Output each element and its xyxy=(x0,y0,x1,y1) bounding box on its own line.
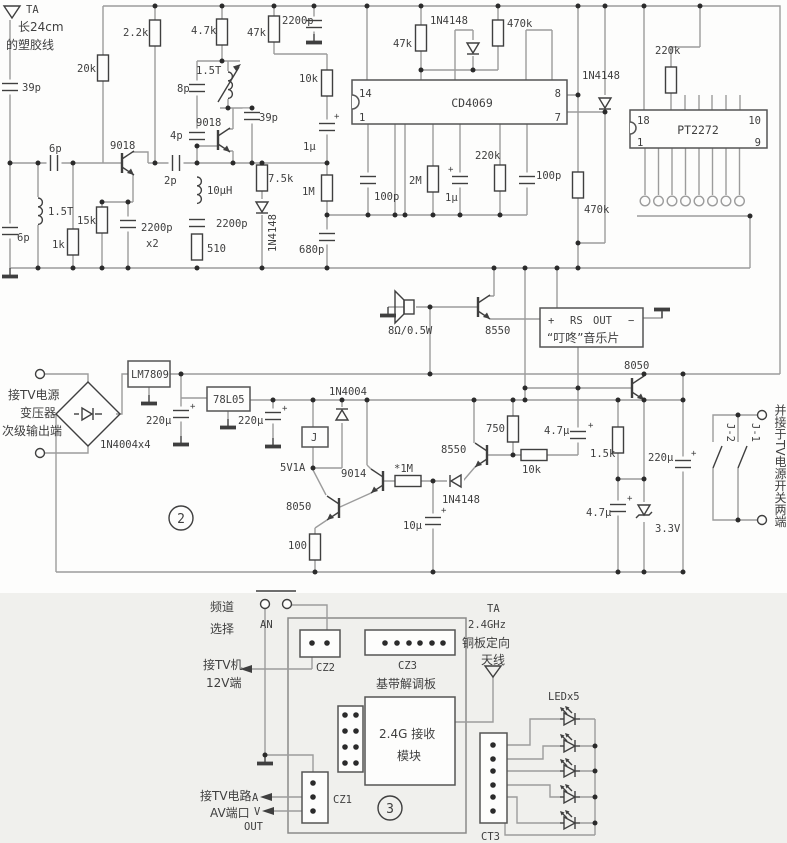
pin-1: 1 xyxy=(359,112,365,124)
wires xyxy=(10,6,780,400)
label-a: A xyxy=(252,792,259,804)
label-5v1a: 5V1A xyxy=(280,462,306,474)
label-d5: 1N4148 xyxy=(442,494,480,506)
plus-sign: + xyxy=(441,506,447,516)
ground xyxy=(654,310,670,319)
ic-notch xyxy=(352,95,359,109)
label-6p-ser: 6p xyxy=(49,143,62,155)
ground xyxy=(141,395,157,404)
switch-blade-j2 xyxy=(713,446,722,468)
resistor-47k-b xyxy=(416,25,427,51)
label-20k: 20k xyxy=(77,63,97,75)
label-1u-b: 1µ xyxy=(445,192,458,204)
label-6p-b: 6p xyxy=(17,232,30,244)
label-39p-r: 39p xyxy=(259,112,278,124)
label-star-1m: *1M xyxy=(394,463,413,475)
label-ant-note1: 长24cm xyxy=(18,20,64,34)
cap-6p-series xyxy=(47,154,62,173)
resistor-1M xyxy=(322,175,333,201)
label-v: V xyxy=(254,806,261,818)
label-ta: TA xyxy=(26,4,39,16)
terminal-switch-top xyxy=(758,411,767,420)
label-zener: 3.3V xyxy=(655,523,681,535)
label-j1: J-1 xyxy=(749,423,761,442)
label-100p-b: 100p xyxy=(536,170,561,182)
transistor-8550-q3 xyxy=(478,295,490,319)
label-ant24-3: 铜板定向 xyxy=(462,635,510,650)
label-10uH: 10µH xyxy=(207,185,232,197)
bridge-diode xyxy=(79,406,95,422)
cap-4.7u-b xyxy=(609,501,628,516)
label-2200p-x2a: 2200p xyxy=(141,222,173,234)
label-7.5k: 7.5k xyxy=(268,173,294,185)
label-tv12v-2: 12V端 xyxy=(206,676,241,690)
label-relay-j: J xyxy=(311,432,317,444)
resistor-star-1M xyxy=(395,476,421,487)
label-1.5T-l: 1.5T xyxy=(48,206,74,218)
label-pwr-in1: 接TV电源 xyxy=(8,387,60,402)
label-ant24-4: 天线 xyxy=(481,653,505,667)
label-section3: 3 xyxy=(386,802,394,817)
section-music-chip: 8Ω/0.5W 8550 + RS OUT − “叮咚”音乐片 8050 xyxy=(380,291,683,572)
resistor-100 xyxy=(310,534,321,560)
resistor-20k xyxy=(98,55,109,81)
label-ant24-1: TA xyxy=(487,603,500,615)
label-10u: 10µ xyxy=(403,520,423,532)
button-an-terminal-left xyxy=(261,600,270,609)
label-music-name: “叮咚”音乐片 xyxy=(547,330,619,345)
label-channel2: 选择 xyxy=(210,622,234,636)
terminal-switch-bottom xyxy=(758,516,767,525)
plus-sign: + xyxy=(691,449,697,459)
cap-100p-a xyxy=(359,173,378,188)
resistor-470k-a xyxy=(493,20,504,46)
pin-9: 9 xyxy=(755,137,761,149)
cap-680p xyxy=(318,230,337,245)
label-1k: 1k xyxy=(52,239,65,251)
ground xyxy=(380,307,396,316)
label-4.7k: 4.7k xyxy=(191,25,217,37)
label-cz3: CZ3 xyxy=(398,660,417,672)
label-bridge: 1N4004x4 xyxy=(100,439,151,451)
cap-4.7u-a xyxy=(569,428,588,443)
label-d3: 1N4148 xyxy=(582,70,620,82)
cap-220u-c xyxy=(674,457,693,472)
cap-2200p-x2 xyxy=(119,217,138,232)
label-music-out: OUT xyxy=(593,315,613,327)
label-220k-b: 220k xyxy=(655,45,681,57)
label-q6: 9014 xyxy=(341,468,366,480)
label-d1: 1N4148 xyxy=(267,214,279,252)
schematic-canvas: TA 长24cm 的塑胶线 39p 6p 1.5T 6p 1k 15k 20k … xyxy=(0,0,787,843)
pin-14: 14 xyxy=(359,88,372,100)
resistor-220k-b xyxy=(666,67,677,93)
label-section2: 2 xyxy=(177,512,185,527)
resistor-510 xyxy=(192,234,203,260)
pin-8: 8 xyxy=(555,88,561,100)
label-tv12v-1: 接TV机 xyxy=(203,657,243,672)
label-cz2: CZ2 xyxy=(316,662,335,674)
label-1n4004: 1N4004 xyxy=(329,386,367,398)
coil-1.5T-left xyxy=(32,197,44,225)
label-q4: 8050 xyxy=(624,360,649,372)
resistor-7.5k xyxy=(257,165,268,191)
cap-4p xyxy=(188,129,207,144)
resistor-2M xyxy=(428,166,439,192)
diode-1n4148-a xyxy=(254,199,270,215)
resistor-10k-b xyxy=(521,450,547,461)
label-470k-b: 470k xyxy=(584,204,610,216)
cap-10u xyxy=(424,514,443,529)
diode-1n4148-b xyxy=(465,40,481,56)
cap-2200p-2 xyxy=(188,216,207,231)
label-out: OUT xyxy=(244,821,264,833)
transistor-9018-q2 xyxy=(218,128,230,152)
label-470k-a: 470k xyxy=(507,18,533,30)
transistor-8050-q5 xyxy=(327,496,339,520)
plus-sign: + xyxy=(588,421,594,431)
ground xyxy=(2,268,18,277)
connector-cz2 xyxy=(300,630,340,657)
label-2p: 2p xyxy=(164,175,177,187)
ground xyxy=(220,419,236,428)
ic-notch xyxy=(630,122,636,134)
coil-10uH xyxy=(191,176,203,204)
label-q1: 9018 xyxy=(110,140,135,152)
resistor-4.7k xyxy=(217,19,228,45)
pin-18: 18 xyxy=(637,115,650,127)
label-music-rs: RS xyxy=(570,315,583,327)
label-module2: 模块 xyxy=(397,749,421,763)
label-78l05: 78L05 xyxy=(213,394,245,406)
label-510: 510 xyxy=(207,243,226,255)
label-1.5k: 1.5k xyxy=(590,448,616,460)
cap-39p-left xyxy=(1,80,20,95)
diode-1n4148-c xyxy=(597,95,613,111)
label-speaker: 8Ω/0.5W xyxy=(388,325,433,337)
label-ant24-2: 2.4GHz xyxy=(468,619,506,631)
label-ct3: CT3 xyxy=(481,831,500,843)
module-connector xyxy=(338,706,363,772)
resistor-15k xyxy=(97,207,108,233)
label-ledx5: LEDx5 xyxy=(548,691,580,703)
plus-sign: + xyxy=(190,402,196,412)
module-2.4g-body xyxy=(365,697,455,785)
label-ant-note2: 的塑胶线 xyxy=(6,37,54,52)
transistor-9018-q1 xyxy=(122,151,134,175)
label-47k-b: 47k xyxy=(393,38,413,50)
label-channel1: 频道 xyxy=(210,600,234,614)
ground xyxy=(173,436,189,445)
label-lm7809: LM7809 xyxy=(131,369,169,381)
label-220u-c: 220µ xyxy=(648,452,674,464)
label-ic2: PT2272 xyxy=(677,123,719,137)
pin-10: 10 xyxy=(748,115,761,127)
label-8p: 8p xyxy=(177,83,190,95)
transistor-8050-q4 xyxy=(632,376,644,400)
label-q7: 8550 xyxy=(441,444,466,456)
label-board: 基带解调板 xyxy=(376,677,436,691)
resistor-47k-top xyxy=(269,16,280,42)
plus-sign: + xyxy=(448,165,454,175)
resistor-750 xyxy=(508,416,519,442)
label-module1: 2.4G 接收 xyxy=(379,726,435,741)
label-4.7u-b: 4.7µ xyxy=(586,507,612,519)
label-220k-a: 220k xyxy=(475,150,501,162)
plus-sign: + xyxy=(334,112,340,122)
label-2.2k: 2.2k xyxy=(123,27,149,39)
label-music-minus: − xyxy=(628,315,634,327)
label-1.5T-r: 1.5T xyxy=(196,65,222,77)
pt2272-pads xyxy=(640,196,744,206)
antenna-ta xyxy=(4,6,20,18)
label-750: 750 xyxy=(486,423,505,435)
diode-1n4148-d5 xyxy=(448,473,464,489)
label-2200p-x2b: x2 xyxy=(146,238,159,250)
section-rf-decoder: TA 长24cm 的塑胶线 39p 6p 1.5T 6p 1k 15k 20k … xyxy=(1,4,781,401)
cap-8p xyxy=(188,81,207,96)
label-4.7u-a: 4.7µ xyxy=(544,425,570,437)
ground xyxy=(265,438,281,447)
label-an: AN xyxy=(260,619,273,631)
label-q3: 8550 xyxy=(485,325,510,337)
label-4p: 4p xyxy=(170,130,183,142)
label-av1: 接TV电路 xyxy=(200,788,252,803)
label-2M: 2M xyxy=(409,175,422,187)
label-pwr-in3: 次级输出端 xyxy=(2,423,62,438)
label-d2: 1N4148 xyxy=(430,15,468,27)
button-an-terminal-right xyxy=(283,600,292,609)
diode-1n4004-flyback xyxy=(334,407,350,423)
label-ic1: CD4069 xyxy=(451,96,493,110)
label-music-plus: + xyxy=(548,315,554,327)
label-39p-l: 39p xyxy=(22,82,41,94)
transistor-8550-q7 xyxy=(475,443,487,467)
plus-sign: + xyxy=(627,494,633,504)
variable-arrowhead xyxy=(233,64,241,72)
label-j2: J-2 xyxy=(724,423,736,442)
label-100: 100 xyxy=(288,540,307,552)
resistor-10k-a xyxy=(322,70,333,96)
label-pwr-in2: 变压器 xyxy=(20,405,56,420)
label-10k-a: 10k xyxy=(299,73,319,85)
pin-1b: 1 xyxy=(637,137,643,149)
label-1M: 1M xyxy=(302,186,315,198)
pin-7: 7 xyxy=(555,112,561,124)
label-2200p-t: 2200p xyxy=(282,15,314,27)
terminal-ac-top xyxy=(36,370,45,379)
plus-sign: + xyxy=(282,404,288,414)
label-220u-a: 220µ xyxy=(146,415,172,427)
label-47k-t: 47k xyxy=(247,27,267,39)
label-15k: 15k xyxy=(77,215,97,227)
label-1u-a: 1µ xyxy=(303,141,316,153)
cap-220u-a xyxy=(172,407,191,422)
label-220u-b: 220µ xyxy=(238,415,264,427)
section-power-supply: 接TV电源 变压器 次级输出端 1N4004x4 LM7809 220µ + 7… xyxy=(2,361,787,575)
cap-220u-b xyxy=(264,409,283,424)
resistor-2.2k xyxy=(150,20,161,46)
terminal-ac-bottom xyxy=(36,449,45,458)
label-2200p-2: 2200p xyxy=(216,218,248,230)
label-av2: AV端口 xyxy=(210,806,250,820)
label-100p-a: 100p xyxy=(374,191,399,203)
cap-2p xyxy=(169,154,184,173)
schematic-page: TA 长24cm 的塑胶线 39p 6p 1.5T 6p 1k 15k 20k … xyxy=(0,0,787,843)
label-q5: 8050 xyxy=(286,501,311,513)
zener-3.3v xyxy=(636,502,652,522)
ground xyxy=(306,34,322,43)
label-cz1: CZ1 xyxy=(333,794,352,806)
resistor-470k-b xyxy=(573,172,584,198)
label-10k-b: 10k xyxy=(522,464,542,476)
label-q2: 9018 xyxy=(196,117,221,129)
resistor-1k xyxy=(68,229,79,255)
label-680p: 680p xyxy=(299,244,324,256)
label-switch-note: 并接于TV电源开关两端 xyxy=(773,404,787,529)
cap-100p-b xyxy=(518,173,537,188)
resistor-220k-a xyxy=(495,165,506,191)
transistor-9014-q6 xyxy=(371,469,383,493)
switch-blade-j1 xyxy=(738,446,747,468)
